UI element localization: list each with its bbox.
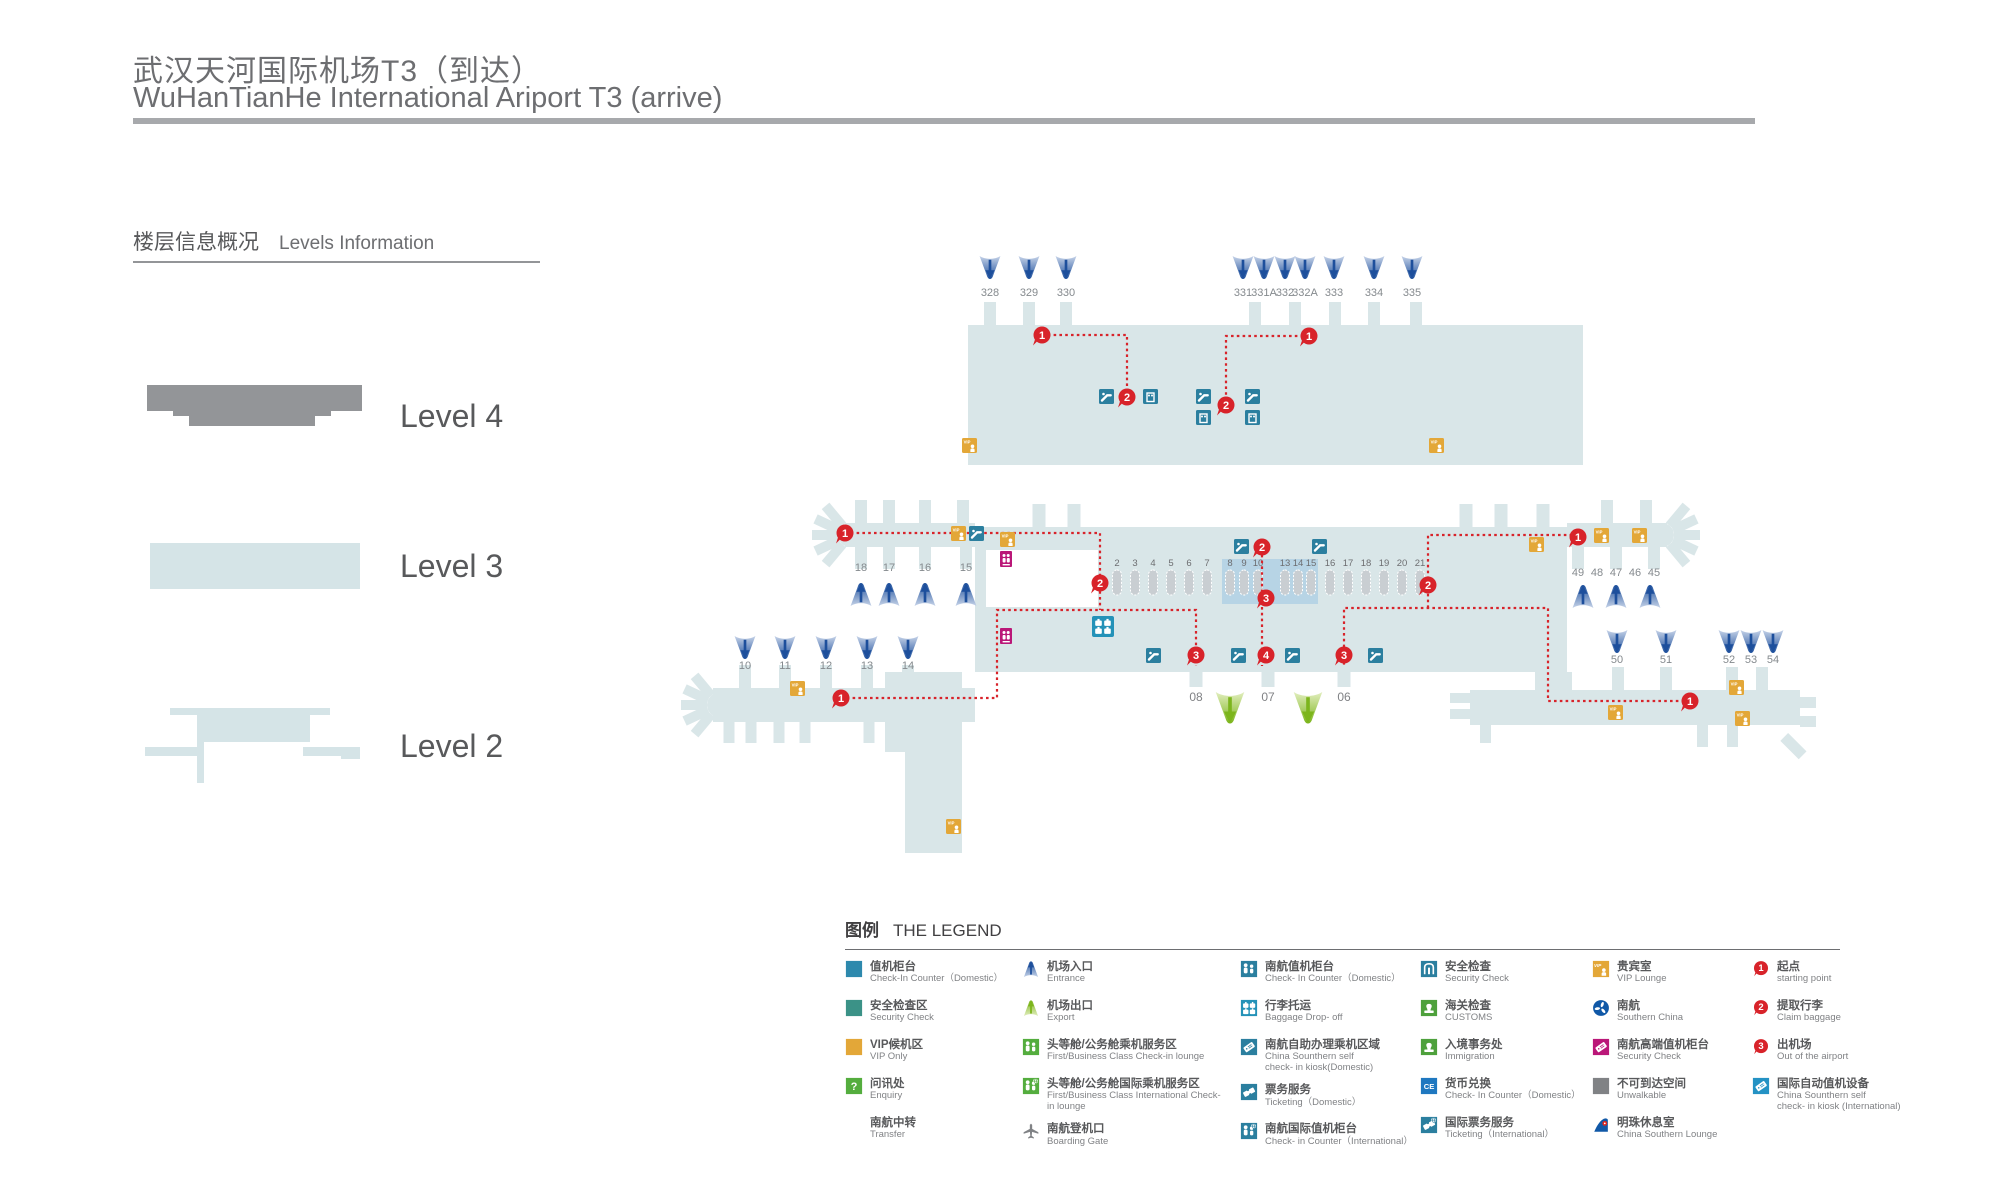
counter-15 bbox=[1307, 570, 1316, 595]
legend-item: 南航国际值机柜台Check- in Counter（International） bbox=[1240, 1122, 1440, 1152]
legend-label-cn: 安全检查区 bbox=[870, 999, 934, 1013]
legend-label-en: starting point bbox=[1777, 974, 1831, 985]
escalator-icon bbox=[1196, 389, 1211, 404]
gate-arrow-icon bbox=[1364, 256, 1385, 279]
svg-text:2: 2 bbox=[1114, 558, 1119, 569]
legend-label-en: Claim baggage bbox=[1777, 1013, 1841, 1024]
escalator-icon bbox=[1146, 648, 1161, 663]
gate-arrow-icon bbox=[1275, 256, 1296, 279]
svg-text:20: 20 bbox=[1397, 558, 1408, 569]
svg-text:17: 17 bbox=[883, 562, 895, 574]
svg-text:1: 1 bbox=[1575, 532, 1581, 544]
counter-9 bbox=[1240, 570, 1249, 595]
premium-checkin-icon bbox=[1000, 628, 1012, 644]
legend-label-en: Southern China bbox=[1617, 1013, 1683, 1024]
red2-icon: 2 bbox=[1752, 999, 1770, 1017]
svg-text:18: 18 bbox=[1361, 558, 1372, 569]
counter-5 bbox=[1167, 570, 1176, 595]
legend-label-en: Check- In Counter（Domestic） bbox=[1445, 1091, 1581, 1102]
escalator-icon bbox=[1245, 389, 1260, 404]
svg-text:331: 331 bbox=[1234, 287, 1252, 299]
legend-item: 安全检查区Security Check bbox=[845, 999, 1045, 1029]
svg-text:16: 16 bbox=[919, 562, 931, 574]
svg-text:13: 13 bbox=[1280, 558, 1291, 569]
legend-label-cn: 南航登机口 bbox=[1047, 1122, 1108, 1136]
svg-text:VIP: VIP bbox=[1610, 707, 1617, 712]
exit-arrow-icon bbox=[1294, 692, 1323, 724]
gate-arrow-icon bbox=[1324, 256, 1345, 279]
counter-4 bbox=[1149, 570, 1158, 595]
vip-lounge-icon: VIP bbox=[1735, 711, 1750, 726]
svg-text:2: 2 bbox=[1425, 580, 1431, 592]
legend-column-1: 值机柜台Check-In Counter（Domestic）安全检查区Secur… bbox=[845, 960, 1045, 1155]
svg-text:10: 10 bbox=[739, 660, 751, 672]
svg-text:3: 3 bbox=[1263, 593, 1269, 605]
legend-label-en: First/Business Class International Check… bbox=[1047, 1091, 1222, 1113]
premium-checkin-icon bbox=[1000, 551, 1012, 567]
legend-label-cn: 国际自动值机设备 bbox=[1777, 1077, 1901, 1091]
counter-20 bbox=[1398, 570, 1407, 595]
counter-19 bbox=[1380, 570, 1389, 595]
gate-arrow-icon bbox=[1254, 256, 1275, 279]
gate-arrow-icon bbox=[1295, 256, 1316, 279]
escalator-icon bbox=[969, 526, 984, 541]
level4-shape bbox=[147, 385, 367, 430]
svg-text:21: 21 bbox=[1415, 558, 1426, 569]
svg-text:VIP: VIP bbox=[948, 821, 955, 826]
legend-column-3: 南航值机柜台Check- In Counter（Domestic）行李托运Bag… bbox=[1240, 960, 1440, 1161]
svg-text:9: 9 bbox=[1241, 558, 1246, 569]
gate-arrow-icon bbox=[956, 583, 977, 606]
legend-label-en: China Sounthern self check- in kiosk (In… bbox=[1777, 1091, 1901, 1113]
svg-text:?: ? bbox=[851, 1081, 858, 1093]
counter-8 bbox=[1226, 570, 1235, 595]
legend-title-cn: 图例 bbox=[845, 921, 879, 940]
ce-icon: CE bbox=[1420, 1077, 1438, 1095]
legend-item: 机场入口Entrance bbox=[1022, 960, 1222, 990]
elevator-icon bbox=[1196, 410, 1211, 425]
svg-text:VIP: VIP bbox=[1731, 682, 1738, 687]
legend-column-2: 机场入口Entrance机场出口Export头等舱/公务舱乘机服务区First/… bbox=[1022, 960, 1222, 1161]
svg-text:17: 17 bbox=[1343, 558, 1354, 569]
legend-label-cn: 南航 bbox=[1617, 999, 1683, 1013]
legend-label-en: Check-In Counter（Domestic） bbox=[870, 974, 1003, 985]
vip-lounge-icon: VIP bbox=[790, 681, 805, 696]
svg-text:3: 3 bbox=[1341, 650, 1347, 662]
svg-text:16: 16 bbox=[1325, 558, 1336, 569]
counter-13 bbox=[1281, 570, 1290, 595]
gate-arrow-icon bbox=[851, 583, 872, 606]
red1-icon: 1 bbox=[1752, 960, 1770, 978]
gate-arrow-icon bbox=[775, 636, 796, 659]
legend-item: 国际自动值机设备China Sounthern self check- in k… bbox=[1752, 1077, 1952, 1113]
gate-arrow-icon bbox=[1763, 630, 1784, 653]
gate-arrow-icon bbox=[1606, 585, 1627, 608]
legend-item: VIP候机区VIP Only bbox=[845, 1038, 1045, 1068]
legend-divider bbox=[845, 949, 1840, 950]
legend-label-cn: 头等舱/公务舱乘机服务区 bbox=[1047, 1038, 1204, 1052]
counter-17 bbox=[1344, 570, 1353, 595]
vip-lounge-icon: VIP bbox=[1429, 438, 1444, 453]
people-teal-icon bbox=[1240, 960, 1258, 978]
svg-text:12: 12 bbox=[820, 660, 832, 672]
legend-label-en: China Sounthern self check- in kiosk(Dom… bbox=[1265, 1052, 1380, 1074]
svg-text:VIP: VIP bbox=[1634, 530, 1641, 535]
svg-text:45: 45 bbox=[1648, 567, 1660, 579]
escalator-icon bbox=[1285, 648, 1300, 663]
cs-fin-icon bbox=[1592, 1116, 1610, 1134]
legend-label-cn: 机场入口 bbox=[1047, 960, 1093, 974]
svg-text:47: 47 bbox=[1610, 567, 1622, 579]
legend-item: 行李托运Baggage Drop- off bbox=[1240, 999, 1440, 1029]
svg-text:52: 52 bbox=[1723, 654, 1735, 666]
legend-label-cn: VIP候机区 bbox=[870, 1038, 923, 1052]
legend-column-4: 安全检查Security Check海关检查CUSTOMS入境事务处Immigr… bbox=[1420, 960, 1620, 1155]
levels-title-en: Levels Information bbox=[279, 233, 434, 254]
vip-lounge-icon: VIP bbox=[1529, 537, 1544, 552]
svg-text:1: 1 bbox=[1039, 330, 1045, 342]
gate-arrow-icon bbox=[1719, 630, 1740, 653]
legend-label-cn: 南航自助办理乘机区域 bbox=[1265, 1038, 1380, 1052]
svg-text:CE: CE bbox=[1424, 1082, 1435, 1091]
legend-item: ?问讯处Enquiry bbox=[845, 1077, 1045, 1107]
svg-text:VIP: VIP bbox=[1594, 963, 1602, 968]
legend-label-en: China Southern Lounge bbox=[1617, 1130, 1717, 1141]
svg-text:6: 6 bbox=[1186, 558, 1191, 569]
cone-green-icon bbox=[1022, 999, 1040, 1017]
door-icon bbox=[1420, 960, 1438, 978]
legend-item: 国际票务服务Ticketing（International） bbox=[1420, 1116, 1620, 1146]
svg-text:5: 5 bbox=[1168, 558, 1173, 569]
svg-text:48: 48 bbox=[1591, 567, 1603, 579]
svg-text:15: 15 bbox=[960, 562, 972, 574]
legend-section: 图例THE LEGEND 值机柜台Check-In Counter（Domest… bbox=[845, 916, 1945, 950]
svg-text:08: 08 bbox=[1189, 690, 1203, 704]
legend-label-en: Baggage Drop- off bbox=[1265, 1013, 1342, 1024]
ticket-teal-icon bbox=[1240, 1083, 1258, 1101]
legend-label-en: Check- In Counter（Domestic） bbox=[1265, 974, 1401, 985]
svg-text:3: 3 bbox=[1193, 650, 1199, 662]
legend-item: 安全检查Security Check bbox=[1420, 960, 1620, 990]
counter-7 bbox=[1203, 570, 1212, 595]
counter-18 bbox=[1362, 570, 1371, 595]
svg-text:VIP: VIP bbox=[1737, 713, 1744, 718]
svg-text:53: 53 bbox=[1745, 654, 1757, 666]
svg-text:46: 46 bbox=[1629, 567, 1641, 579]
legend-label-cn: 提取行李 bbox=[1777, 999, 1841, 1013]
gate-arrow-icon bbox=[857, 636, 878, 659]
gate-arrow-icon bbox=[816, 636, 837, 659]
legend-label-cn: 出机场 bbox=[1777, 1038, 1848, 1052]
legend-label-en: VIP Only bbox=[870, 1052, 923, 1063]
page-title-en: WuHanTianHe International Ariport T3 (ar… bbox=[133, 82, 722, 115]
legend-label-cn: 票务服务 bbox=[1265, 1083, 1361, 1097]
ticket-globe-teal-icon bbox=[1420, 1116, 1438, 1134]
gate-arrow-icon bbox=[915, 583, 936, 606]
counter-16 bbox=[1326, 570, 1335, 595]
sq-blue-icon bbox=[845, 960, 863, 978]
svg-text:333: 333 bbox=[1325, 287, 1343, 299]
enquiry-icon: ? bbox=[845, 1077, 863, 1095]
escalator-icon bbox=[1234, 539, 1249, 554]
legend-label-en: Boarding Gate bbox=[1047, 1137, 1108, 1148]
gate-arrow-icon bbox=[1019, 256, 1040, 279]
level4-label: Level 4 bbox=[400, 398, 503, 435]
svg-text:49: 49 bbox=[1572, 567, 1584, 579]
legend-label-cn: 起点 bbox=[1777, 960, 1831, 974]
svg-text:1: 1 bbox=[838, 693, 844, 705]
counter-3 bbox=[1131, 570, 1140, 595]
svg-text:51: 51 bbox=[1660, 654, 1672, 666]
svg-text:1: 1 bbox=[1306, 331, 1312, 343]
elevator-icon bbox=[1143, 389, 1158, 404]
svg-text:13: 13 bbox=[861, 660, 873, 672]
svg-text:VIP: VIP bbox=[1002, 534, 1009, 539]
stamp-icon bbox=[1420, 999, 1438, 1017]
legend-label-cn: 行李托运 bbox=[1265, 999, 1342, 1013]
svg-text:331A: 331A bbox=[1251, 287, 1277, 299]
kiosk-teal-icon bbox=[1240, 1038, 1258, 1056]
legend-label-cn: 南航国际值机柜台 bbox=[1265, 1122, 1413, 1136]
svg-text:1: 1 bbox=[1687, 696, 1693, 708]
svg-text:4: 4 bbox=[1263, 650, 1270, 662]
legend-title-en: THE LEGEND bbox=[893, 921, 1002, 940]
levels-divider bbox=[133, 261, 540, 263]
svg-text:54: 54 bbox=[1767, 654, 1779, 666]
stamp2-icon bbox=[1420, 1038, 1438, 1056]
level2-shape bbox=[145, 705, 367, 787]
legend-label-en: Enquiry bbox=[870, 1091, 905, 1102]
people-globe-teal-icon bbox=[1240, 1122, 1258, 1140]
people-globe-green-icon bbox=[1022, 1077, 1040, 1095]
svg-text:15: 15 bbox=[1306, 558, 1317, 569]
cs-circle-icon bbox=[1592, 999, 1610, 1017]
legend-label-cn: 贵宾室 bbox=[1617, 960, 1666, 974]
legend-item: 南航登机口Boarding Gate bbox=[1022, 1122, 1222, 1152]
legend-item: 头等舱/公务舱乘机服务区First/Business Class Check-i… bbox=[1022, 1038, 1222, 1068]
legend-label-en: First/Business Class Check-in lounge bbox=[1047, 1052, 1204, 1063]
legend-label-en: Check- in Counter（International） bbox=[1265, 1137, 1413, 1148]
level3-shape bbox=[150, 543, 365, 591]
sq-gray-icon bbox=[1592, 1077, 1610, 1095]
legend-label-en: Unwalkable bbox=[1617, 1091, 1686, 1102]
svg-text:328: 328 bbox=[981, 287, 999, 299]
legend-item: 机场出口Export bbox=[1022, 999, 1222, 1029]
levels-section-title: 楼层信息概况Levels Information bbox=[133, 226, 434, 256]
kiosk-magenta-icon bbox=[1592, 1038, 1610, 1056]
svg-text:14: 14 bbox=[1293, 558, 1304, 569]
legend-label-cn: 不可到达空间 bbox=[1617, 1077, 1686, 1091]
svg-text:VIP: VIP bbox=[1431, 440, 1438, 445]
level3-label: Level 3 bbox=[400, 548, 503, 585]
legend-label-en: VIP Lounge bbox=[1617, 974, 1666, 985]
legend-item: 头等舱/公务舱国际乘机服务区First/Business Class Inter… bbox=[1022, 1077, 1222, 1113]
svg-text:4: 4 bbox=[1150, 558, 1155, 569]
legend-label-en: Entrance bbox=[1047, 974, 1093, 985]
legend-label-cn: 安全检查 bbox=[1445, 960, 1509, 974]
title-divider bbox=[133, 118, 1755, 124]
svg-text:7: 7 bbox=[1204, 558, 1209, 569]
legend-label-cn: 海关检查 bbox=[1445, 999, 1492, 1013]
legend-title: 图例THE LEGEND bbox=[845, 916, 1945, 941]
vip-lounge-icon: VIP bbox=[1000, 532, 1015, 547]
svg-text:VIP: VIP bbox=[953, 528, 960, 533]
legend-label-cn: 明珠休息室 bbox=[1617, 1116, 1717, 1130]
svg-text:2: 2 bbox=[1259, 542, 1265, 554]
legend-label-en: CUSTOMS bbox=[1445, 1013, 1492, 1024]
elevator-icon bbox=[1245, 410, 1260, 425]
legend-label-en: Out of the airport bbox=[1777, 1052, 1848, 1063]
legend-label-en: Transfer bbox=[870, 1130, 916, 1141]
legend-item: 入境事务处Immigration bbox=[1420, 1038, 1620, 1068]
svg-text:06: 06 bbox=[1337, 690, 1351, 704]
legend-label-en: Immigration bbox=[1445, 1052, 1503, 1063]
legend-item: 海关检查CUSTOMS bbox=[1420, 999, 1620, 1029]
gate-arrow-icon bbox=[1640, 585, 1661, 608]
svg-text:VIP: VIP bbox=[1531, 539, 1538, 544]
legend-label-cn: 问讯处 bbox=[870, 1077, 905, 1091]
gate-arrow-icon bbox=[1656, 630, 1677, 653]
red3-icon: 3 bbox=[1752, 1038, 1770, 1056]
counter-6 bbox=[1185, 570, 1194, 595]
legend-label-cn: 入境事务处 bbox=[1445, 1038, 1503, 1052]
legend-item: 值机柜台Check-In Counter（Domestic） bbox=[845, 960, 1045, 990]
svg-text:329: 329 bbox=[1020, 287, 1038, 299]
svg-text:335: 335 bbox=[1403, 287, 1421, 299]
svg-text:330: 330 bbox=[1057, 287, 1075, 299]
svg-text:8: 8 bbox=[1227, 558, 1232, 569]
svg-text:1: 1 bbox=[1758, 963, 1763, 974]
vip-lounge-icon: VIP bbox=[951, 526, 966, 541]
gate-arrow-icon bbox=[980, 256, 1001, 279]
levels-title-cn: 楼层信息概况 bbox=[133, 231, 259, 254]
svg-text:07: 07 bbox=[1261, 690, 1275, 704]
legend-item: 2提取行李Claim baggage bbox=[1752, 999, 1952, 1029]
legend-item: 3出机场Out of the airport bbox=[1752, 1038, 1952, 1068]
sq-orange-icon bbox=[845, 1038, 863, 1056]
vip-lounge-icon: VIP bbox=[1632, 528, 1647, 543]
svg-text:3: 3 bbox=[1132, 558, 1137, 569]
svg-text:19: 19 bbox=[1379, 558, 1390, 569]
legend-column-6: 1起点starting point2提取行李Claim baggage3出机场O… bbox=[1752, 960, 1952, 1122]
people-green-icon bbox=[1022, 1038, 1040, 1056]
vip-lounge-icon: VIP bbox=[946, 819, 961, 834]
legend-label-en: Security Check bbox=[1445, 974, 1509, 985]
legend-label-en: Export bbox=[1047, 1013, 1093, 1024]
vip-lounge-icon: VIP bbox=[962, 438, 977, 453]
svg-text:2: 2 bbox=[1758, 1002, 1763, 1013]
escalator-icon bbox=[1312, 539, 1327, 554]
vip-lounge-icon: VIP bbox=[1608, 705, 1623, 720]
legend-label-en: Security Check bbox=[870, 1013, 934, 1024]
legend-label-en: Security Check bbox=[1617, 1052, 1709, 1063]
svg-text:2: 2 bbox=[1097, 578, 1103, 590]
cone-blue-icon bbox=[1022, 960, 1040, 978]
escalator-icon bbox=[1099, 389, 1114, 404]
level2-label: Level 2 bbox=[400, 728, 503, 765]
svg-text:14: 14 bbox=[902, 660, 914, 672]
legend-item: CE货币兑换Check- In Counter（Domestic） bbox=[1420, 1077, 1620, 1107]
svg-text:18: 18 bbox=[855, 562, 867, 574]
sq-teal-icon bbox=[845, 999, 863, 1017]
gate-arrow-icon bbox=[1402, 256, 1423, 279]
svg-text:3: 3 bbox=[1758, 1041, 1763, 1052]
gate-arrow-icon bbox=[1741, 630, 1762, 653]
terminal-map: 2345678910131415161718192021VIPVIPVIPVIP… bbox=[680, 190, 1920, 920]
legend-item: 票务服务Ticketing（Domestic） bbox=[1240, 1083, 1440, 1113]
legend-item: 南航值机柜台Check- In Counter（Domestic） bbox=[1240, 960, 1440, 990]
counter-2 bbox=[1113, 570, 1122, 595]
svg-text:VIP: VIP bbox=[792, 683, 799, 688]
none-icon bbox=[845, 1116, 863, 1134]
gate-arrow-icon bbox=[1056, 256, 1077, 279]
baggage-dropoff-icon bbox=[1092, 616, 1114, 637]
legend-label-en: Ticketing（Domestic） bbox=[1265, 1098, 1361, 1109]
gate-arrow-icon bbox=[1233, 256, 1254, 279]
gate-arrow-icon bbox=[735, 636, 756, 659]
counter-14 bbox=[1294, 570, 1303, 595]
escalator-icon bbox=[1231, 648, 1246, 663]
legend-label-cn: 机场出口 bbox=[1047, 999, 1093, 1013]
exit-arrow-icon bbox=[1216, 692, 1245, 724]
gate-arrow-icon bbox=[879, 583, 900, 606]
svg-text:11: 11 bbox=[779, 660, 790, 672]
gate-arrow-icon bbox=[1607, 630, 1628, 653]
svg-text:332A: 332A bbox=[1292, 287, 1318, 299]
gate-arrow-icon bbox=[898, 636, 919, 659]
legend-label-cn: 头等舱/公务舱国际乘机服务区 bbox=[1047, 1077, 1222, 1091]
vip-lounge-icon: VIP bbox=[1729, 680, 1744, 695]
svg-text:50: 50 bbox=[1611, 654, 1623, 666]
plane-icon bbox=[1022, 1122, 1040, 1140]
legend-label-en: Ticketing（International） bbox=[1445, 1130, 1554, 1141]
legend-label-cn: 南航中转 bbox=[870, 1116, 916, 1130]
svg-text:2: 2 bbox=[1223, 400, 1229, 412]
legend-item: 1起点starting point bbox=[1752, 960, 1952, 990]
escalator-icon bbox=[1368, 648, 1383, 663]
svg-text:1: 1 bbox=[842, 528, 848, 540]
legend-item: 南航自助办理乘机区域China Sounthern self check- in… bbox=[1240, 1038, 1440, 1074]
legend-item: 南航中转Transfer bbox=[845, 1116, 1045, 1146]
svg-text:2: 2 bbox=[1124, 392, 1130, 404]
vip-icon: VIP bbox=[1592, 960, 1610, 978]
svg-text:334: 334 bbox=[1365, 287, 1383, 299]
baggage-icon bbox=[1240, 999, 1258, 1017]
legend-label-cn: 南航高端值机柜台 bbox=[1617, 1038, 1709, 1052]
gate-arrow-icon bbox=[1573, 585, 1594, 608]
kiosk-blue-icon bbox=[1752, 1077, 1770, 1095]
svg-text:VIP: VIP bbox=[964, 440, 971, 445]
vip-lounge-icon: VIP bbox=[1594, 528, 1609, 543]
svg-text:VIP: VIP bbox=[1596, 530, 1603, 535]
